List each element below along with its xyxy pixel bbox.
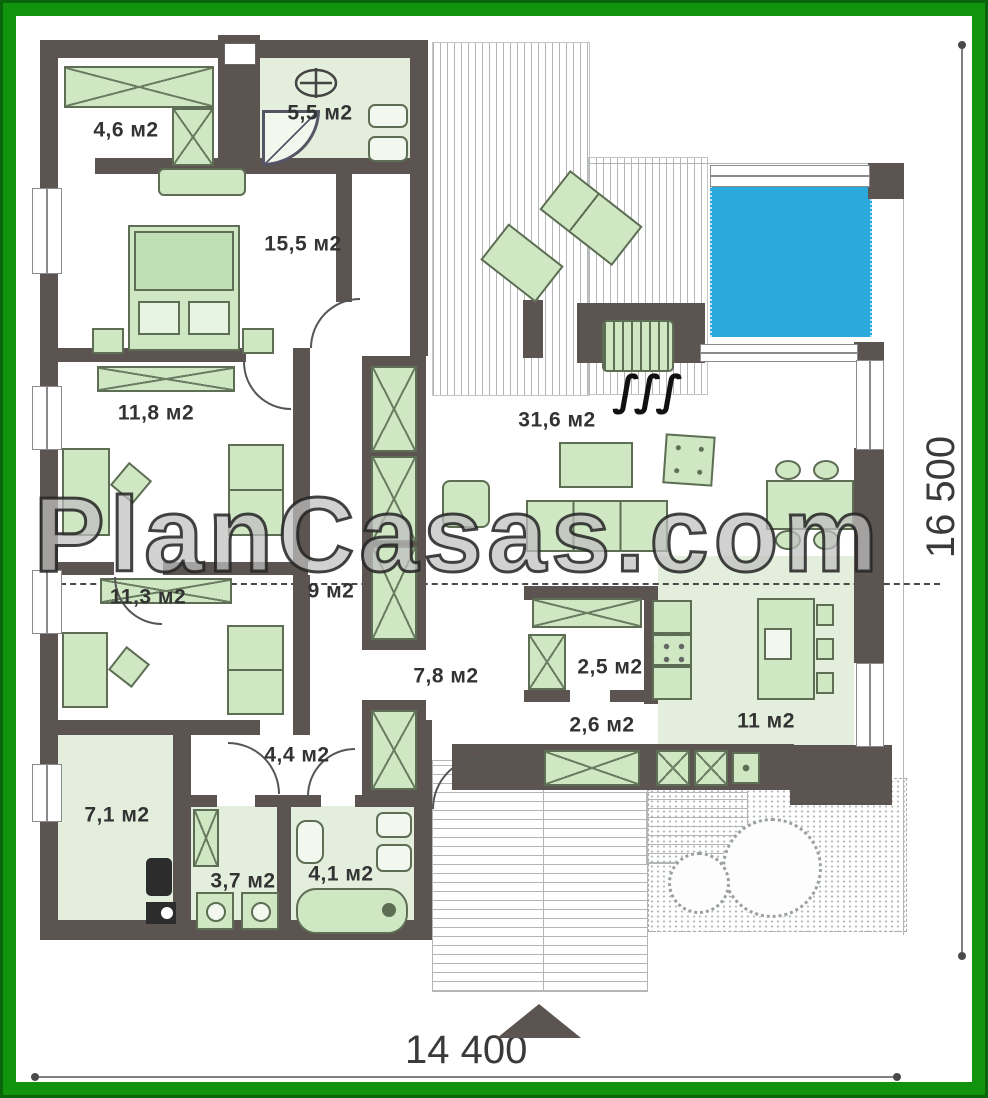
bed3-chair — [108, 646, 150, 688]
label-hallway: 4,4 м2 — [264, 745, 329, 766]
wall-entry-right — [410, 40, 428, 174]
window-living-top — [700, 344, 858, 362]
window-living-right-upper — [856, 360, 884, 450]
label-kitchen: 11 м2 — [737, 711, 795, 732]
hall-wardrobe-1 — [371, 366, 417, 452]
fireplace-pillar — [523, 300, 543, 358]
label-pantry-hall: 2,6 м2 — [569, 715, 634, 736]
door-bedroom2 — [243, 362, 291, 410]
dimension-line-bottom — [35, 1076, 897, 1078]
wall-bed3-bottom — [58, 720, 260, 735]
sink-icon-2 — [241, 892, 279, 930]
dresser — [158, 168, 246, 196]
kitchen-counter-upper — [652, 600, 692, 634]
bed3-desk — [62, 632, 108, 708]
hall-wardrobe-4 — [371, 710, 417, 790]
wall-hall-right-upper — [410, 174, 428, 356]
island-sink-icon — [764, 628, 792, 660]
dim-bottom-left-marker — [31, 1073, 39, 1081]
wall-kitchen-corner — [790, 745, 892, 805]
nightstand-left — [92, 328, 124, 354]
fireplace-grill — [602, 320, 674, 372]
wall-wc-bath-sep — [277, 807, 291, 940]
pantry-shelf-top — [532, 598, 642, 628]
bed3-sofa — [227, 625, 284, 715]
window-bedroom2 — [32, 386, 62, 450]
dim-bottom-right-marker — [893, 1073, 901, 1081]
duct-vent — [224, 43, 256, 65]
floor-plan-page: ∫∫∫ 4,6 м2 5,5 м2 15,5 м2 11,8 м2 31,6 м… — [0, 0, 988, 1098]
label-wc: 3,7 м2 — [210, 871, 275, 892]
kitchen-cabinet-dot — [732, 752, 760, 784]
closet-wardrobe-strip — [64, 66, 214, 108]
kitchen-island — [757, 598, 815, 700]
wall-living-right-corner — [854, 342, 884, 360]
wc-cabinet — [193, 809, 219, 867]
bathtub — [296, 888, 408, 934]
sink-icon-1 — [196, 892, 234, 930]
heat-waves-icon: ∫∫∫ — [611, 366, 681, 415]
label-corridor: 7,8 м2 — [413, 666, 478, 687]
label-entry: 5,5 м2 — [287, 103, 352, 124]
closet-wardrobe-vertical — [172, 108, 214, 166]
tree-icon — [722, 818, 822, 918]
wall-bath-top-b — [255, 795, 321, 807]
wall-pantry-bottom-b — [610, 690, 658, 702]
wall-bath-top-a — [191, 795, 217, 807]
terrace-boundary-top — [588, 163, 904, 164]
dim-right-bottom-marker — [958, 952, 966, 960]
bath-fixture-b — [376, 844, 412, 872]
bar-stool-1 — [816, 604, 834, 626]
entrance-arrow-icon — [497, 1004, 581, 1038]
bar-stool-2 — [816, 638, 834, 660]
bath-fixture-a — [376, 812, 412, 838]
bed2-wardrobe-strip — [97, 366, 235, 392]
washer-icon — [146, 902, 176, 924]
bar-stool-3 — [816, 672, 834, 694]
bed-headboard — [134, 231, 234, 291]
stove-icon — [652, 634, 692, 666]
door-master — [310, 298, 360, 348]
nightstand-right — [242, 328, 274, 354]
window-kitchen-right — [856, 663, 884, 747]
ceiling-lamp-icon — [292, 66, 340, 100]
label-living: 31,6 м2 — [518, 410, 595, 431]
steps-center-line — [543, 760, 544, 990]
window-utility — [32, 764, 62, 822]
double-bed — [128, 225, 240, 351]
label-master-bedroom: 15,5 м2 — [264, 234, 341, 255]
wall-pantry-bottom-a — [524, 690, 570, 702]
bath-toilet-icon — [296, 820, 324, 864]
bidet-icon — [368, 136, 408, 162]
watermark: PlanCasas.com — [34, 472, 944, 599]
pool-edge-band — [710, 165, 870, 187]
kitchen-cabinet-b — [694, 750, 728, 786]
water-heater-icon — [146, 858, 172, 896]
kitchen-cabinet-long — [544, 750, 640, 786]
toilet-icon — [368, 104, 408, 128]
bed-pillow-left — [138, 301, 180, 335]
window-master — [32, 188, 62, 274]
label-utility: 7,1 м2 — [84, 805, 149, 826]
label-pantry: 2,5 м2 — [577, 657, 642, 678]
kitchen-counter-lower — [652, 666, 692, 700]
dim-right-top-marker — [958, 41, 966, 49]
label-bathroom: 4,1 м2 — [308, 864, 373, 885]
pantry-shelf-left — [528, 634, 566, 690]
kitchen-cabinet-a — [656, 750, 690, 786]
tree-small-icon — [668, 852, 730, 914]
label-bedroom2: 11,8 м2 — [118, 403, 194, 424]
pool-corner-pier — [868, 163, 904, 199]
bed-pillow-right — [188, 301, 230, 335]
label-closet: 4,6 м2 — [93, 120, 158, 141]
swimming-pool — [710, 186, 872, 337]
